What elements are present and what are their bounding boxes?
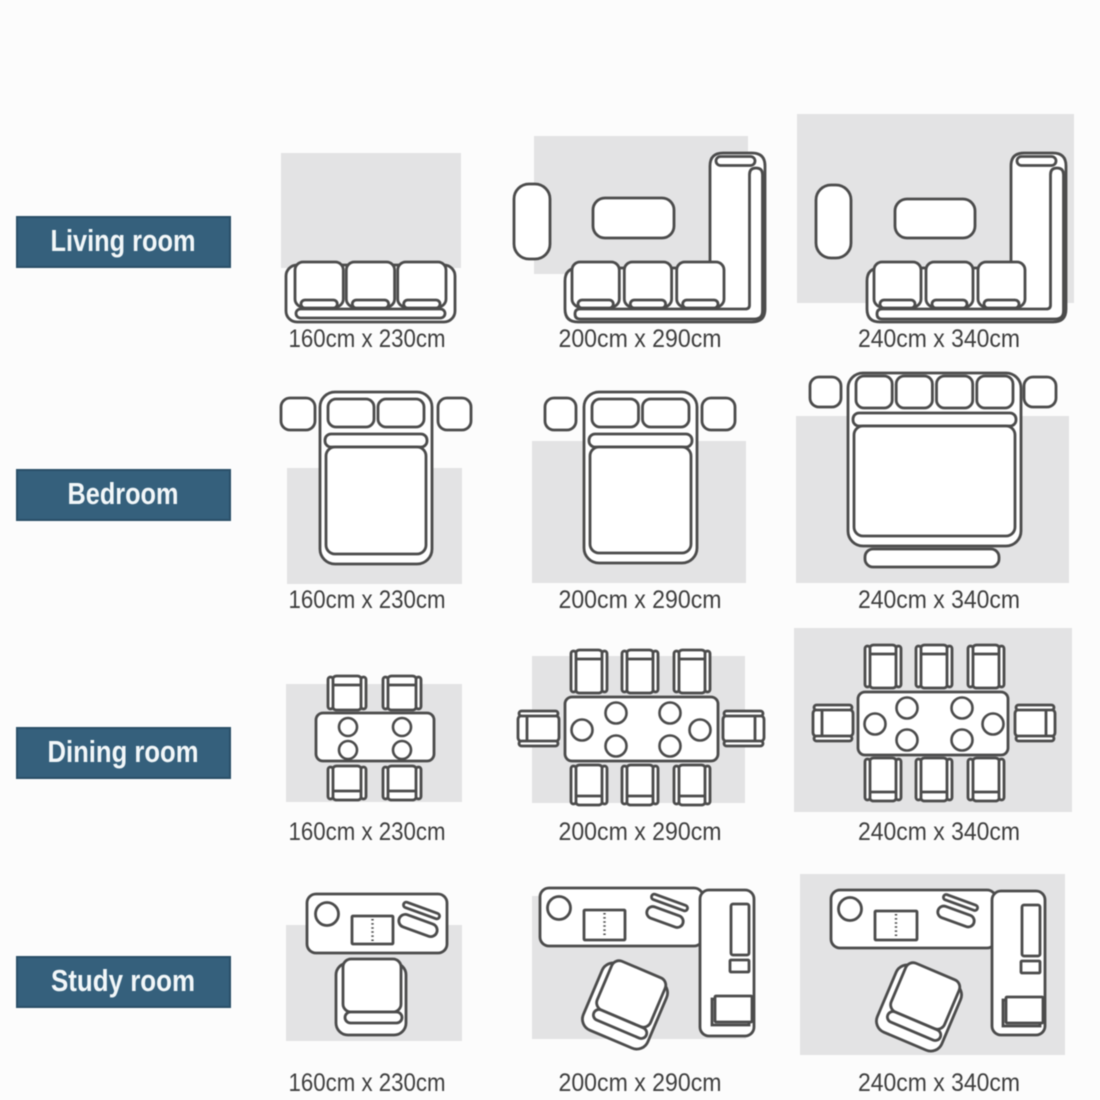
svg-text:Living room: Living room [51, 223, 196, 258]
svg-text:160cm x 230cm: 160cm x 230cm [289, 586, 446, 614]
svg-text:200cm x 290cm: 200cm x 290cm [559, 818, 722, 846]
svg-text:Bedroom: Bedroom [68, 476, 179, 511]
svg-text:160cm x 230cm: 160cm x 230cm [289, 1069, 446, 1097]
svg-text:240cm x 340cm: 240cm x 340cm [858, 325, 1020, 353]
svg-text:200cm x 290cm: 200cm x 290cm [559, 325, 722, 353]
svg-text:160cm x 230cm: 160cm x 230cm [289, 818, 446, 846]
svg-text:Dining room: Dining room [48, 734, 199, 769]
svg-text:200cm x 290cm: 200cm x 290cm [559, 1069, 722, 1097]
svg-text:240cm x 340cm: 240cm x 340cm [858, 1069, 1020, 1097]
svg-text:240cm x 340cm: 240cm x 340cm [858, 818, 1020, 846]
svg-text:Study room: Study room [51, 963, 195, 998]
svg-text:200cm x 290cm: 200cm x 290cm [559, 586, 722, 614]
svg-text:240cm x 340cm: 240cm x 340cm [858, 586, 1020, 614]
svg-text:160cm x 230cm: 160cm x 230cm [289, 325, 446, 353]
